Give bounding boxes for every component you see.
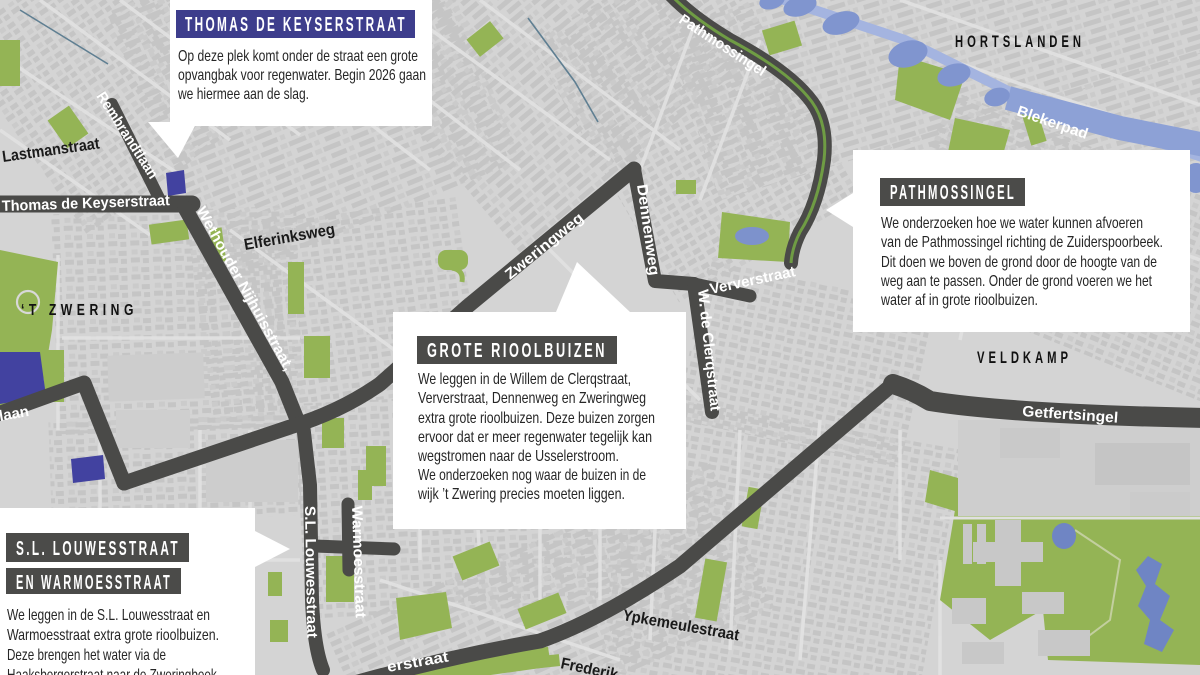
svg-text:We leggen in de S.L. Louwesstr: We leggen in de S.L. Louwesstraat en — [7, 607, 210, 624]
svg-text:Haaksbergerstraat naar de Zwer: Haaksbergerstraat naar de Zweringbeek. — [7, 667, 220, 675]
svg-text:wijk ’t Zwering precies moeten: wijk ’t Zwering precies moeten liggen. — [417, 486, 625, 503]
svg-text:VELDKAMP: VELDKAMP — [977, 348, 1072, 367]
svg-text:PATHMOSSINGEL: PATHMOSSINGEL — [890, 182, 1016, 204]
svg-text:we hiermee aan de slag.: we hiermee aan de slag. — [177, 86, 309, 103]
svg-text:We leggen in de Willem de Cler: We leggen in de Willem de Clerqstraat, — [418, 371, 631, 388]
svg-text:weg aan te passen. Onder de gr: weg aan te passen. Onder de grond voeren… — [880, 273, 1152, 290]
svg-text:EN WARMOESSTRAAT: EN WARMOESSTRAAT — [16, 572, 172, 594]
svg-text:wegstromen naar de Usselerstro: wegstromen naar de Usselerstroom. — [417, 448, 619, 465]
svg-text:van de Pathmossingel richting: van de Pathmossingel richting de Zuiders… — [881, 234, 1163, 251]
svg-text:Warmoesstraat extra grote rioo: Warmoesstraat extra grote rioolbuizen. — [7, 627, 219, 644]
svg-text:Dit doen we boven de grond doo: Dit doen we boven de grond door de hoogt… — [881, 254, 1157, 271]
svg-text:We onderzoeken nog waar de bui: We onderzoeken nog waar de buizen in de — [418, 467, 646, 484]
svg-text:We onderzoeken hoe we water ku: We onderzoeken hoe we water kunnen afvoe… — [881, 215, 1143, 232]
svg-text:HORTSLANDEN: HORTSLANDEN — [955, 32, 1085, 51]
svg-text:S.L. Louwesstraat: S.L. Louwesstraat — [301, 506, 320, 638]
svg-text:THOMAS DE KEYSERSTRAAT: THOMAS DE KEYSERSTRAAT — [185, 14, 407, 36]
svg-text:S.L. LOUWESSTRAAT: S.L. LOUWESSTRAAT — [16, 538, 180, 560]
svg-text:Deze brengen het water via de: Deze brengen het water via de — [7, 647, 166, 664]
svg-text:Ververstraat, Dennenweg en Zwe: Ververstraat, Dennenweg en Zweringweg — [418, 390, 646, 407]
svg-text:water af in grote rioolbuizen.: water af in grote rioolbuizen. — [880, 292, 1038, 309]
svg-text:extra grote rioolbuizen. Deze: extra grote rioolbuizen. Deze buizen zor… — [418, 410, 655, 427]
svg-text:Op deze plek komt onder de str: Op deze plek komt onder de straat een gr… — [178, 48, 418, 65]
svg-text:opvangbak voor regenwater. Beg: opvangbak voor regenwater. Begin 2026 ga… — [178, 67, 426, 84]
svg-text:‘T ZWERING: ‘T ZWERING — [21, 302, 138, 319]
svg-text:GROTE RIOOLBUIZEN: GROTE RIOOLBUIZEN — [427, 340, 607, 362]
svg-text:ervoor dat er meer regenwater: ervoor dat er meer regenwater tegelijk k… — [418, 429, 652, 446]
